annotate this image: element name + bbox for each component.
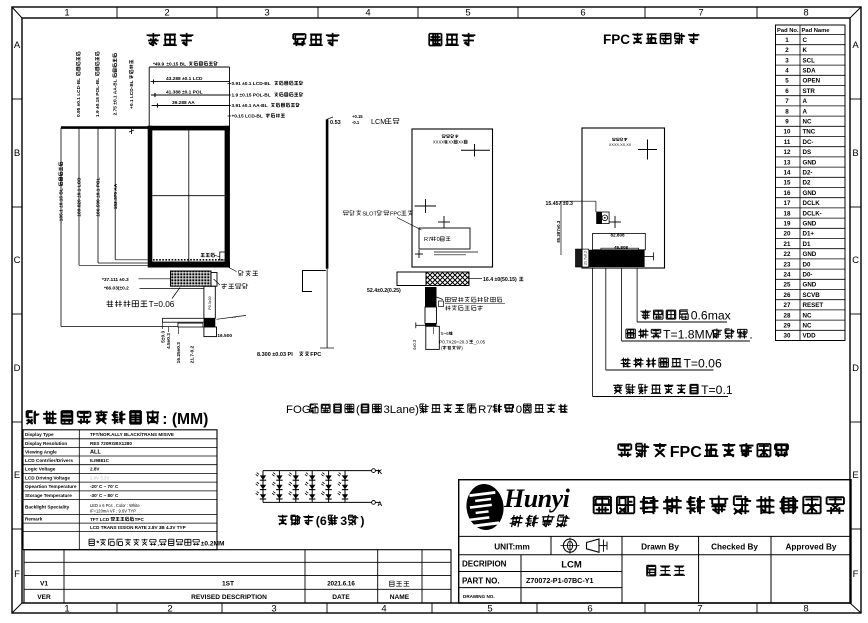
svg-text:2.75 ±0.1 AA-BL: 2.75 ±0.1 AA-BL <box>113 79 119 115</box>
svg-text:4.5±0.3: 4.5±0.3 <box>166 333 172 349</box>
svg-text:5±0.3: 5±0.3 <box>160 331 166 343</box>
svg-text:SLOT: SLOT <box>362 212 377 218</box>
svg-text:DRAWING NO.: DRAWING NO. <box>463 594 495 599</box>
svg-text:: (MM): : (MM) <box>162 411 208 428</box>
svg-text:15: 15 <box>784 180 791 187</box>
svg-text:45.808: 45.808 <box>614 245 628 250</box>
svg-text:Opeartion Temperature: Opeartion Temperature <box>25 484 77 489</box>
svg-text:17: 17 <box>784 200 791 207</box>
svg-text:*: * <box>96 539 99 548</box>
svg-text:6: 6 <box>587 604 592 615</box>
svg-text:VDD: VDD <box>803 333 817 340</box>
svg-text:-185.1 ±0.15 BL: -185.1 ±0.15 BL <box>59 188 65 223</box>
svg-text:16: 16 <box>784 190 791 197</box>
svg-text:3: 3 <box>271 604 276 615</box>
svg-text:0.6max: 0.6max <box>691 309 731 323</box>
svg-text:LCD TRANS ISSION RATE 2.8V 3B: LCD TRANS ISSION RATE 2.8V 3B 4.3V TYP <box>90 525 186 530</box>
svg-text:.: . <box>749 328 752 342</box>
svg-text:11: 11 <box>784 139 791 146</box>
svg-text:XXXX: XXXX <box>433 140 444 145</box>
svg-text:F: F <box>14 569 20 580</box>
svg-text:T=0.06: T=0.06 <box>149 300 175 309</box>
svg-text:41.388 ±0.1 POL: 41.388 ±0.1 POL <box>166 89 203 95</box>
svg-text:5: 5 <box>785 78 789 85</box>
svg-text:B: B <box>14 148 20 159</box>
svg-text:A: A <box>803 108 808 115</box>
svg-text:-30' C ~ 80' C: -30' C ~ 80' C <box>90 493 119 498</box>
svg-text:29: 29 <box>784 323 791 330</box>
svg-text:1: 1 <box>785 37 789 44</box>
svg-text:D: D <box>852 363 859 374</box>
svg-text:C: C <box>803 37 808 44</box>
svg-text:): ) <box>360 514 364 528</box>
svg-text:DCLK-: DCLK- <box>803 210 822 217</box>
svg-text:TFT/NOR.ALLY BLACK/TRANS MISIV: TFT/NOR.ALLY BLACK/TRANS MISIVE <box>90 432 174 437</box>
svg-text:14: 14 <box>784 170 791 177</box>
svg-text:18: 18 <box>784 210 791 217</box>
svg-text:12: 12 <box>784 149 791 156</box>
svg-text:TNC: TNC <box>803 129 816 136</box>
svg-text:1ST: 1ST <box>222 581 234 588</box>
svg-text:A: A <box>803 98 808 105</box>
svg-text:A: A <box>378 501 383 508</box>
svg-text:Pad Name: Pad Name <box>802 28 831 34</box>
svg-text:Display Resolution: Display Resolution <box>25 441 67 446</box>
svg-text:16.25±0.3: 16.25±0.3 <box>176 342 182 364</box>
svg-text:D0-: D0- <box>803 272 813 279</box>
svg-text:Display Type: Display Type <box>25 432 54 437</box>
svg-text:21.7-0.2: 21.7-0.2 <box>190 345 196 363</box>
svg-text:Backlight Speciality: Backlight Speciality <box>25 505 70 510</box>
svg-text:0: 0 <box>437 237 440 243</box>
svg-text:13: 13 <box>784 159 791 166</box>
svg-text:4: 4 <box>381 604 386 615</box>
svg-text:5: 5 <box>487 604 492 615</box>
svg-text:82.808: 82.808 <box>611 233 625 238</box>
svg-text:LCM: LCM <box>561 560 582 571</box>
svg-text:8: 8 <box>785 108 789 115</box>
svg-text:ILI9881C: ILI9881C <box>90 458 110 463</box>
svg-text:STR: STR <box>803 88 816 95</box>
svg-text:3.91 ±0.1 AA-BL: 3.91 ±0.1 AA-BL <box>232 103 268 109</box>
svg-text:DECRIPION: DECRIPION <box>462 560 507 569</box>
svg-text:4±0.3: 4±0.3 <box>412 339 417 350</box>
svg-text:T=1.8MM: T=1.8MM <box>663 328 715 342</box>
svg-text:C: C <box>852 255 859 266</box>
svg-text:OPEN: OPEN <box>803 78 821 85</box>
svg-text:19: 19 <box>784 221 791 228</box>
svg-text:GND: GND <box>803 251 817 258</box>
svg-text:A: A <box>852 40 859 51</box>
svg-text:*37.111 ±0.3: *37.111 ±0.3 <box>102 277 129 283</box>
svg-text:3Lane): 3Lane) <box>383 404 419 416</box>
svg-text:B: B <box>852 148 858 159</box>
svg-text:VER: VER <box>37 594 51 601</box>
svg-text:XX: XX <box>458 140 464 145</box>
svg-text:T=0.1: T=0.1 <box>701 383 733 397</box>
svg-text:2: 2 <box>167 604 172 615</box>
svg-text:24: 24 <box>784 272 791 279</box>
svg-text:±0.2MM: ±0.2MM <box>201 541 225 548</box>
svg-text:7: 7 <box>698 8 703 19</box>
svg-text:1.9 ±0.15 POL-BL: 1.9 ±0.15 POL-BL <box>95 78 101 117</box>
svg-text:-20' C ~ 70' C: -20' C ~ 70' C <box>90 484 119 489</box>
svg-text:2021.6.16: 2021.6.16 <box>327 581 355 588</box>
svg-text:GND: GND <box>803 282 817 289</box>
svg-text:2: 2 <box>164 8 169 19</box>
svg-text:V1: V1 <box>40 581 48 588</box>
svg-text:PART NO.: PART NO. <box>462 577 500 586</box>
svg-text:85.387±0.3: 85.387±0.3 <box>556 220 561 243</box>
svg-text:T=0.06: T=0.06 <box>683 357 722 371</box>
svg-text:GND: GND <box>803 159 817 166</box>
svg-text:_0.05: _0.05 <box>473 340 486 345</box>
svg-text:FOG: FOG <box>286 404 311 416</box>
svg-text:Storage Temperature: Storage Temperature <box>25 493 72 498</box>
svg-text:0.91 ±0.1 LCD-BL: 0.91 ±0.1 LCD-BL <box>232 81 271 87</box>
svg-text:A: A <box>14 40 21 51</box>
svg-text:XX: XX <box>448 140 454 145</box>
svg-text:FPC: FPC <box>603 32 630 47</box>
svg-text:D0: D0 <box>803 261 811 268</box>
svg-text:D2-: D2- <box>803 170 813 177</box>
svg-text:189.820 ±0.1 LCD: 189.820 ±0.1 LCD <box>77 177 83 217</box>
svg-text:*66.03(±0.2: *66.03(±0.2 <box>104 286 129 292</box>
svg-text:C: C <box>14 255 21 266</box>
svg-text:SDA: SDA <box>803 68 817 75</box>
svg-text:+0.15: +0.15 <box>352 114 363 119</box>
svg-text:3: 3 <box>340 514 347 528</box>
svg-text:26: 26 <box>784 292 791 299</box>
svg-text:22: 22 <box>784 251 791 258</box>
svg-text:2.9V-3.3V: 2.9V-3.3V <box>90 475 109 480</box>
svg-text:21: 21 <box>784 241 791 248</box>
svg-text:30: 30 <box>784 333 791 340</box>
svg-text:0.53: 0.53 <box>330 120 341 126</box>
svg-text:XXXX.XX.XX: XXXX.XX.XX <box>609 143 632 147</box>
svg-text:SCVB: SCVB <box>803 292 821 299</box>
svg-text:NC: NC <box>803 323 812 330</box>
svg-text:Z70072-P1-07BC-Y1: Z70072-P1-07BC-Y1 <box>526 576 594 585</box>
svg-text:D1+: D1+ <box>803 231 815 238</box>
svg-text:4: 4 <box>365 8 370 19</box>
svg-text:GND: GND <box>803 221 817 228</box>
svg-text:Drawn By: Drawn By <box>641 543 679 552</box>
svg-text:15.457 ±0.3: 15.457 ±0.3 <box>546 201 573 207</box>
svg-text:+0.1 LCD-BL: +0.1 LCD-BL <box>129 80 135 109</box>
svg-text:0.95 ±0.1 LCD-BL: 0.95 ±0.1 LCD-BL <box>76 78 82 117</box>
svg-text:-0.1: -0.1 <box>352 120 360 125</box>
svg-text:SCL: SCL <box>803 57 816 64</box>
svg-text:E: E <box>852 470 858 481</box>
svg-text:8: 8 <box>803 8 808 19</box>
svg-text:F: F <box>853 569 859 580</box>
svg-text:28: 28 <box>784 312 791 319</box>
svg-text:Approved By: Approved By <box>786 543 837 552</box>
svg-text:K: K <box>378 469 383 476</box>
svg-text:3: 3 <box>785 57 789 64</box>
svg-text:0: 0 <box>516 404 522 416</box>
svg-text:(: ( <box>356 404 360 416</box>
svg-text:D: D <box>14 363 21 374</box>
svg-text:Remark: Remark <box>25 516 43 521</box>
svg-text:DATE: DATE <box>332 594 350 601</box>
svg-text:D2: D2 <box>803 180 811 187</box>
svg-text:GND: GND <box>803 190 817 197</box>
svg-text:Checked By: Checked By <box>711 543 758 552</box>
svg-text:5: 5 <box>465 8 470 19</box>
svg-text:1.9 ±0.15 POL-BL: 1.9 ±0.15 POL-BL <box>232 93 271 99</box>
svg-text:52.4±0.2(0.25): 52.4±0.2(0.25) <box>367 288 401 294</box>
svg-text:182.370 AA: 182.370 AA <box>113 183 119 209</box>
svg-text:R7: R7 <box>424 237 431 243</box>
svg-text:P0.3x30: P0.3x30 <box>208 296 212 309</box>
svg-text:8: 8 <box>803 604 808 615</box>
svg-text:2: 2 <box>785 47 789 54</box>
svg-text:+0.15 LCD-BL: +0.15 LCD-BL <box>232 114 263 120</box>
svg-text:TPC: TPC <box>135 517 145 522</box>
svg-text:Logic Voltage: Logic Voltage <box>25 467 56 472</box>
svg-text:16.500: 16.500 <box>217 333 232 339</box>
svg-text:RESET: RESET <box>803 302 824 309</box>
svg-text:*49.9: *49.9 <box>153 62 165 68</box>
svg-text:NC: NC <box>803 312 812 319</box>
svg-text:39.288 AA: 39.288 AA <box>172 100 195 106</box>
svg-text:6: 6 <box>580 8 585 19</box>
svg-text:LCD Driving Voltage: LCD Driving Voltage <box>25 475 70 480</box>
svg-text:186.500 ±0.1 POL: 186.500 ±0.1 POL <box>96 177 102 216</box>
svg-text:1: 1 <box>64 8 69 19</box>
svg-text:23: 23 <box>784 261 791 268</box>
svg-text:D1: D1 <box>803 241 811 248</box>
svg-text:±0.15 BL: ±0.15 BL <box>166 62 186 68</box>
svg-text:P0.7X29=20.3: P0.7X29=20.3 <box>439 340 468 345</box>
svg-text:NAME: NAME <box>390 594 410 601</box>
svg-text:27: 27 <box>784 302 791 309</box>
svg-text:3: 3 <box>264 8 269 19</box>
svg-text:25: 25 <box>784 282 791 289</box>
svg-text:REVISED DESCRIPTION: REVISED DESCRIPTION <box>191 594 267 601</box>
svg-text:5~6: 5~6 <box>441 331 449 336</box>
svg-text:LED x 6 Pcs , Color : White: LED x 6 Pcs , Color : White <box>90 503 140 508</box>
svg-text:DC-: DC- <box>803 139 814 146</box>
svg-text:Pad No.: Pad No. <box>777 28 799 34</box>
svg-text:Viewing Angle: Viewing Angle <box>25 449 57 454</box>
svg-text:~~: ~~ <box>231 315 236 320</box>
svg-text:16.4 ±0(50.15): 16.4 ±0(50.15) <box>483 277 517 283</box>
svg-text:21.7±0.2: 21.7±0.2 <box>584 251 588 265</box>
svg-text:20: 20 <box>784 231 791 238</box>
svg-text:10: 10 <box>784 129 791 136</box>
svg-text:4: 4 <box>785 68 789 75</box>
svg-text:FPC: FPC <box>670 443 702 461</box>
svg-text:2.8V: 2.8V <box>90 467 100 472</box>
svg-text:LCM: LCM <box>371 117 386 126</box>
svg-text:R7: R7 <box>478 404 493 416</box>
svg-text:RES 720RGBX1280: RES 720RGBX1280 <box>90 441 132 446</box>
svg-text:7: 7 <box>785 98 789 105</box>
svg-text:6: 6 <box>785 88 789 95</box>
svg-text:IF=120mA VF : 9.6V TYP: IF=120mA VF : 9.6V TYP <box>90 509 136 514</box>
svg-text:K: K <box>803 47 808 54</box>
svg-text:LCD Contrlier/Drivers: LCD Contrlier/Drivers <box>25 458 73 463</box>
svg-text:ALL: ALL <box>90 449 101 455</box>
svg-text:UNIT:mm: UNIT:mm <box>494 543 529 552</box>
svg-text:(6: (6 <box>316 514 327 528</box>
svg-text:43.288 ±0.1 LCD: 43.288 ±0.1 LCD <box>166 76 203 82</box>
svg-text:TFT LCD: TFT LCD <box>90 517 110 522</box>
svg-text:1: 1 <box>64 604 69 615</box>
svg-text:8.300 ±0.03 PI: 8.300 ±0.03 PI <box>257 352 293 358</box>
svg-text:E: E <box>14 470 20 481</box>
svg-text:DCLK: DCLK <box>803 200 821 207</box>
svg-text:Hunyi: Hunyi <box>503 484 571 513</box>
svg-text:DS: DS <box>803 149 812 156</box>
svg-text:FPC: FPC <box>310 352 321 358</box>
svg-text:9: 9 <box>785 119 789 126</box>
svg-text:FPC: FPC <box>390 212 401 218</box>
svg-text:NC: NC <box>803 119 812 126</box>
svg-text:7: 7 <box>697 604 702 615</box>
